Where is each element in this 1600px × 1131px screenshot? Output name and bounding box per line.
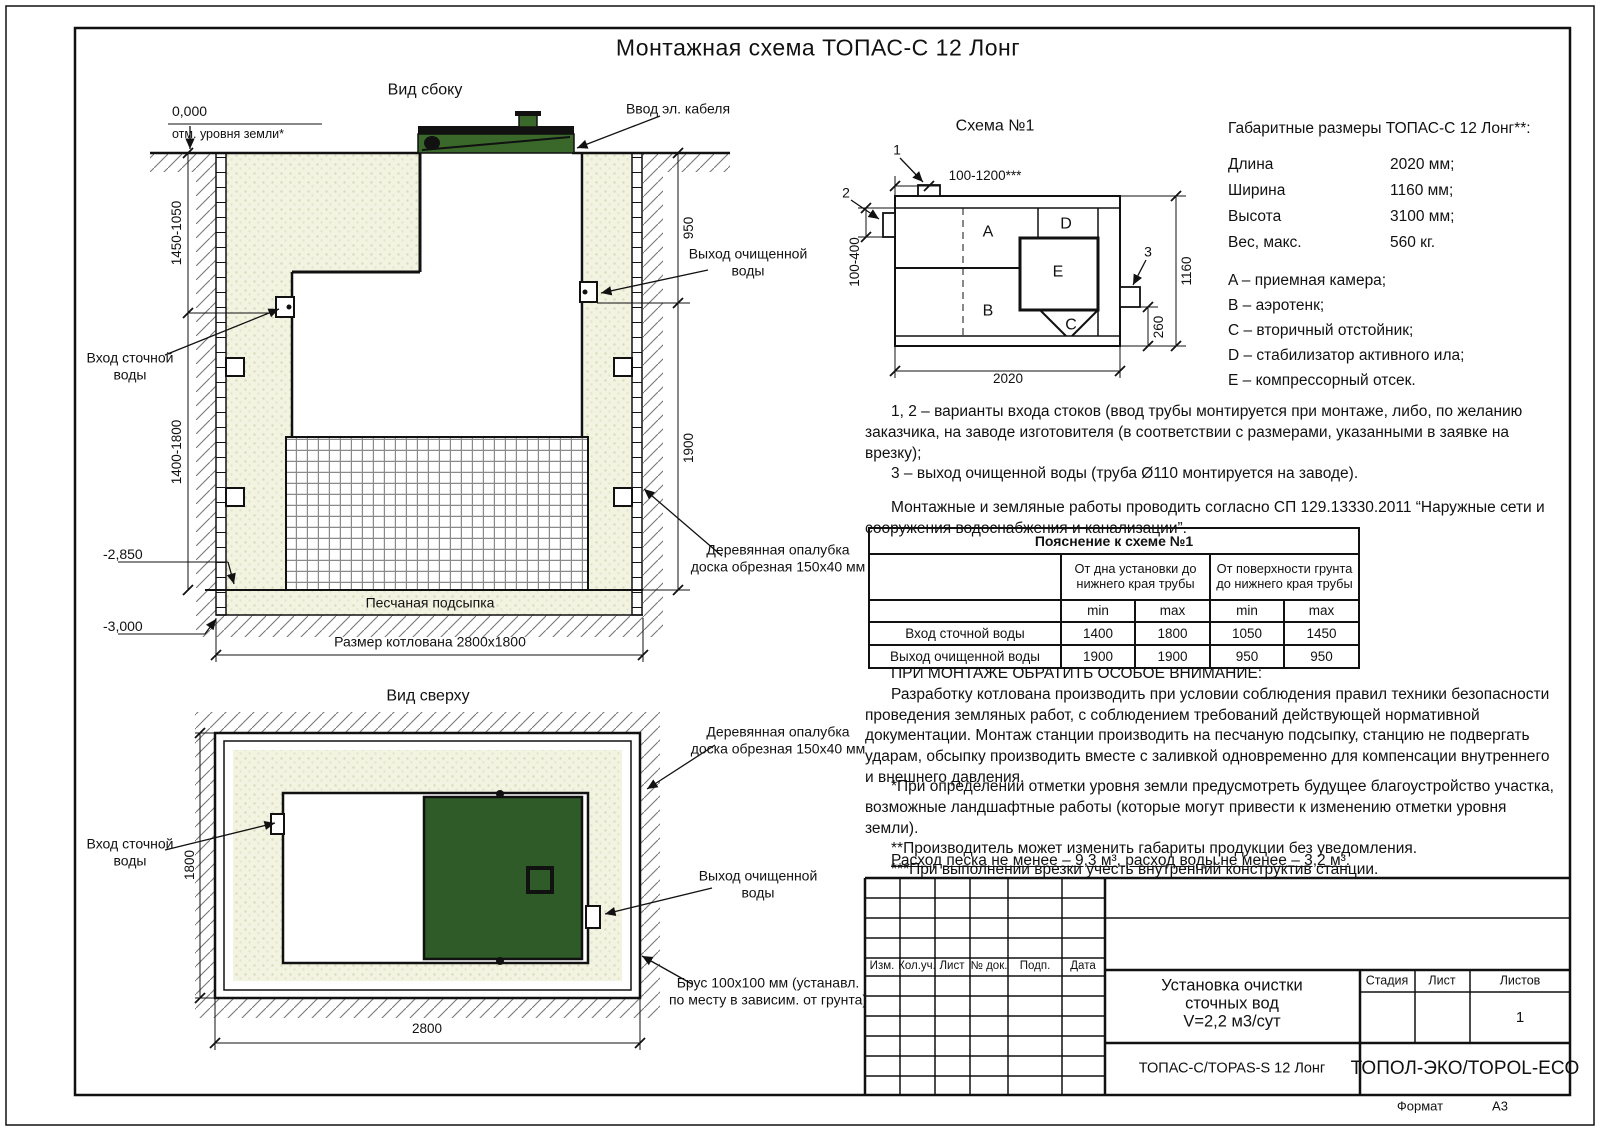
callout-2: 2 xyxy=(842,185,850,202)
table-group-1: От дна установки до нижнего края трубы xyxy=(1061,554,1210,600)
callout-1: 1 xyxy=(893,142,901,159)
consumption-block: Расход песка не менее – 9,3 м³, расход в… xyxy=(865,851,1561,872)
spec-value: 1160 мм; xyxy=(1390,182,1453,200)
spec-value: 2020 мм; xyxy=(1390,156,1454,174)
page-title: Монтажная схема ТОПАС-С 12 Лонг xyxy=(616,34,1020,61)
warning-body: Разработку котлована производить при усл… xyxy=(865,685,1561,789)
schema-drawing xyxy=(851,158,1186,378)
zero-level-mark: 0,000 xyxy=(172,103,207,119)
tb-col-list: Лист xyxy=(940,960,965,974)
tb-col-izm: Изм. xyxy=(870,960,895,974)
sheet-header: Лист xyxy=(1428,974,1455,989)
vent-stub xyxy=(519,115,537,127)
tank-body xyxy=(292,272,582,437)
tank-lid xyxy=(418,111,574,153)
sand-bedding-label: Песчаная подсыпка xyxy=(366,595,495,612)
notes-block: 1, 2 – варианты входа стоков (ввод трубы… xyxy=(865,402,1561,540)
note-variants-1: 1, 2 – варианты входа стоков (ввод трубы… xyxy=(865,402,1561,464)
dim-2800: 2800 xyxy=(412,1021,442,1037)
specs-title: Габаритные размеры ТОПАС-С 12 Лонг**: xyxy=(1228,120,1531,138)
footnote: *При определении отметки уровня земли пр… xyxy=(865,777,1561,839)
tb-col-data: Дата xyxy=(1070,960,1095,974)
row-label: Вход сточной воды xyxy=(869,622,1061,645)
side-view-drawing xyxy=(118,111,730,662)
compartment-d: D xyxy=(1060,216,1072,235)
side-view-title: Вид сбоку xyxy=(388,82,463,101)
dim-1900: 1900 xyxy=(681,433,697,463)
spec-label: Ширина xyxy=(1228,182,1285,200)
company-name: ТОПОЛ-ЭКО/TOPOL-ECO xyxy=(1351,1058,1580,1080)
sheets-header: Листов xyxy=(1500,974,1541,989)
formwork-label-top: Деревянная опалубка доска обрезная 150x4… xyxy=(689,723,867,756)
level-3000-label: -3,000 xyxy=(103,618,143,634)
tank-neck xyxy=(420,153,582,272)
beam-label: Брус 100x100 мм (устанавл. по месту в за… xyxy=(668,974,868,1007)
spec-value: 3100 мм; xyxy=(1390,208,1454,226)
dim-100-400: 100-400 xyxy=(847,237,863,287)
spec-label: Высота xyxy=(1228,208,1281,226)
min-header: min xyxy=(1061,600,1135,622)
outlet-label-top: Выход очищенной воды xyxy=(696,867,821,900)
note-variants-2: 3 – выход очищенной воды (труба Ø110 мон… xyxy=(865,464,1561,485)
tank-ribbed-base xyxy=(286,437,588,590)
dim-1800: 1800 xyxy=(182,850,198,880)
spec-label: Вес, макс. xyxy=(1228,234,1302,252)
legend-item: A – приемная камера; xyxy=(1228,272,1386,290)
cable-entry-label: Ввод эл. кабеля xyxy=(626,101,730,118)
formwork-left xyxy=(216,153,226,615)
tb-col-podp: Подп. xyxy=(1020,960,1051,974)
dim-950: 950 xyxy=(681,217,697,240)
schema-stub-3 xyxy=(1120,287,1140,307)
consumption-note: Расход песка не менее – 9,3 м³, расход в… xyxy=(865,851,1561,872)
compartment-c: C xyxy=(1065,317,1077,336)
dim-1160: 1160 xyxy=(1179,256,1195,285)
tv-lid xyxy=(424,797,582,959)
project-line: Установка очистки xyxy=(1161,976,1302,995)
outlet-label-side: Выход очищенной воды xyxy=(686,245,811,278)
stage-header: Стадия xyxy=(1366,974,1409,989)
legend-item: C – вторичный отстойник; xyxy=(1228,322,1413,340)
dim-100-1200: 100-1200*** xyxy=(949,168,1022,184)
ground-level-note: отм. уровня земли* xyxy=(172,127,284,141)
sheets-value: 1 xyxy=(1516,1009,1524,1027)
row-value: 1450 xyxy=(1284,622,1359,645)
level-2850-label: -2,850 xyxy=(103,546,143,562)
row-value: 1050 xyxy=(1210,622,1284,645)
row-value: 1800 xyxy=(1135,622,1210,645)
spec-value: 560 кг. xyxy=(1390,234,1435,252)
model-name: ТОПАС-С/TOPAS-S 12 Лонг xyxy=(1139,1060,1325,1077)
compartment-a: A xyxy=(983,224,994,243)
table-title: Пояснение к схеме №1 xyxy=(869,528,1359,554)
schema-title: Схема №1 xyxy=(956,118,1035,137)
dim-2020: 2020 xyxy=(993,371,1023,387)
table-empty-cell xyxy=(869,600,1061,622)
top-view-drawing xyxy=(165,712,715,1050)
compartment-e: E xyxy=(1053,264,1064,283)
inlet-label-top: Вход сточной воды xyxy=(80,835,180,868)
format-value: А3 xyxy=(1492,1098,1508,1113)
table-corner-cell xyxy=(869,554,1061,600)
legend-item: D – стабилизатор активного ила; xyxy=(1228,347,1464,365)
tb-col-doc: № док. xyxy=(971,960,1008,974)
dim-1400-1800: 1400-1800 xyxy=(169,420,185,485)
drawing-sheet: Монтажная схема ТОПАС-С 12 Лонг Вид сбок… xyxy=(0,0,1600,1131)
top-view-title: Вид сверху xyxy=(386,688,469,707)
formwork-right xyxy=(632,153,642,615)
spec-label: Длина xyxy=(1228,156,1273,174)
schema-stub-2 xyxy=(883,213,895,237)
explanation-table: Пояснение к схеме №1 От дна установки до… xyxy=(868,527,1360,669)
inlet-label-side: Вход сточной воды xyxy=(80,349,180,382)
callout-3: 3 xyxy=(1144,244,1152,261)
formwork-label-side: Деревянная опалубка доска обрезная 150x4… xyxy=(689,541,867,574)
project-line: сточных вод xyxy=(1185,994,1279,1013)
max-header: max xyxy=(1284,600,1359,622)
row-value: 1400 xyxy=(1061,622,1135,645)
table-group-2: От поверхности грунта до нижнего края тр… xyxy=(1210,554,1359,600)
max-header: max xyxy=(1135,600,1210,622)
dim-1450-1050: 1450-1050 xyxy=(169,201,185,266)
format-label: Формат xyxy=(1397,1098,1443,1113)
warning-block: ПРИ МОНТАЖЕ ОБРАТИТЬ ОСОБОЕ ВНИМАНИЕ: Ра… xyxy=(865,664,1561,789)
tv-hatch-detail xyxy=(528,868,552,892)
warning-heading: ПРИ МОНТАЖЕ ОБРАТИТЬ ОСОБОЕ ВНИМАНИЕ: xyxy=(865,664,1561,685)
tv-outlet-stub xyxy=(586,906,600,928)
pit-size-label: Размер котлована 2800x1800 xyxy=(334,634,526,651)
project-line: V=2,2 м3/сут xyxy=(1183,1012,1280,1031)
legend-item: B – аэротенк; xyxy=(1228,297,1324,315)
min-header: min xyxy=(1210,600,1284,622)
legend-item: E – компрессорный отсек. xyxy=(1228,372,1416,390)
compartment-b: B xyxy=(983,303,994,322)
table-row: Вход сточной воды 1400 1800 1050 1450 xyxy=(869,622,1359,645)
tb-col-kol: Кол.уч. xyxy=(898,960,936,974)
dim-260: 260 xyxy=(1151,316,1167,339)
